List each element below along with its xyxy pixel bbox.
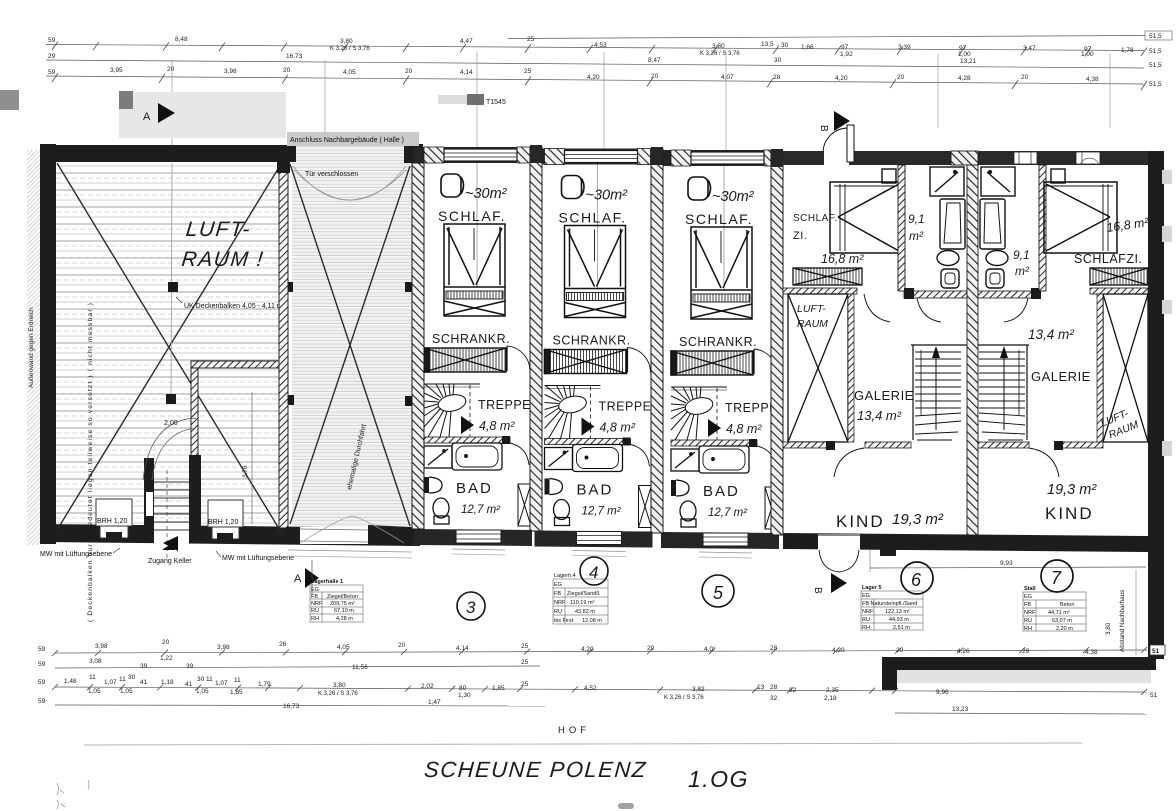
svg-text:59: 59 — [38, 698, 46, 705]
svg-text:2,02: 2,02 — [421, 683, 434, 690]
svg-text:RH: RH — [1024, 626, 1032, 632]
svg-text:4,52: 4,52 — [584, 685, 597, 692]
svg-text:4,20: 4,20 — [581, 646, 594, 653]
svg-text:9,1: 9,1 — [1013, 248, 1030, 262]
svg-text:1,47: 1,47 — [428, 699, 441, 706]
svg-text:44,93 m: 44,93 m — [889, 617, 909, 623]
svg-text:NRF: NRF — [311, 601, 323, 607]
svg-text:MW mit Lüftungsebene: MW mit Lüftungsebene — [222, 555, 294, 562]
svg-text:4,14: 4,14 — [460, 69, 473, 76]
svg-text:4,07: 4,07 — [721, 74, 734, 81]
svg-text:20: 20 — [896, 647, 904, 654]
svg-text:HOF: HOF — [558, 725, 590, 736]
svg-text:8,48: 8,48 — [175, 36, 188, 43]
svg-text:12,7 m²: 12,7 m² — [461, 504, 501, 516]
svg-text:20: 20 — [167, 66, 175, 73]
svg-text:LUFT-: LUFT- — [797, 303, 826, 315]
svg-text:GALERIE: GALERIE — [1031, 369, 1091, 384]
svg-text:BAD: BAD — [456, 480, 493, 497]
svg-text:Beton: Beton — [1060, 602, 1074, 608]
svg-text:13: 13 — [757, 684, 765, 691]
svg-text:3,98: 3,98 — [217, 644, 230, 651]
svg-text:SCHEUNE POLENZ: SCHEUNE POLENZ — [423, 757, 647, 782]
svg-text:1,07: 1,07 — [215, 680, 228, 687]
svg-text:RU: RU — [311, 608, 319, 614]
svg-text:Lagerhalle 1: Lagerhalle 1 — [311, 579, 343, 585]
svg-text:1,00: 1,00 — [958, 51, 971, 58]
svg-text:RU: RU — [1024, 618, 1032, 624]
svg-text:4,20: 4,20 — [587, 74, 600, 81]
svg-text:20: 20 — [405, 68, 413, 75]
svg-text:EG: EG — [311, 587, 319, 593]
svg-text:41: 41 — [185, 681, 193, 688]
svg-text:59: 59 — [38, 679, 46, 686]
svg-text:51,5: 51,5 — [1149, 81, 1162, 88]
svg-text:4,26: 4,26 — [957, 648, 970, 655]
svg-text:K 3,26 / S 3,76: K 3,26 / S 3,76 — [330, 46, 370, 52]
svg-text:26: 26 — [279, 641, 287, 648]
svg-text:B: B — [812, 587, 823, 594]
svg-text:4,20: 4,20 — [832, 647, 845, 654]
svg-text:4,38: 4,38 — [1085, 649, 1098, 656]
svg-text:7: 7 — [1051, 568, 1062, 588]
svg-text:EG: EG — [554, 582, 562, 588]
svg-text:1.OG: 1.OG — [688, 766, 749, 792]
svg-text:4: 4 — [589, 563, 598, 582]
svg-text:Abstand Nachbarhaus: Abstand Nachbarhaus — [1119, 590, 1126, 652]
svg-text:2,20 m: 2,20 m — [1056, 626, 1073, 632]
svg-text:25: 25 — [521, 681, 529, 688]
svg-text:20: 20 — [283, 67, 291, 74]
svg-text:20: 20 — [651, 73, 659, 80]
svg-text:11: 11 — [119, 676, 126, 683]
svg-text:39: 39 — [140, 663, 148, 670]
svg-text:29: 29 — [1022, 648, 1030, 655]
svg-text:3,80: 3,80 — [1105, 622, 1112, 635]
svg-text:3,95: 3,95 — [110, 67, 123, 74]
svg-text:209,75 m²: 209,75 m² — [330, 601, 355, 607]
svg-text:12,08 m: 12,08 m — [582, 618, 602, 624]
svg-text:RH: RH — [311, 616, 319, 622]
svg-text:19,3 m²: 19,3 m² — [892, 511, 944, 528]
svg-text:4,20: 4,20 — [835, 75, 848, 82]
svg-text:11,56: 11,56 — [352, 664, 368, 671]
svg-text:25: 25 — [521, 659, 529, 666]
svg-text:82: 82 — [789, 687, 797, 694]
svg-text:25: 25 — [527, 36, 535, 43]
svg-text:Stall: Stall — [1024, 586, 1036, 592]
svg-text:4,14: 4,14 — [456, 645, 469, 652]
svg-text:11: 11 — [89, 674, 96, 681]
svg-text:13,5: 13,5 — [761, 41, 774, 48]
svg-text:4,05: 4,05 — [343, 69, 356, 76]
svg-text:4,05: 4,05 — [337, 644, 350, 651]
svg-text:TREPPE: TREPPE — [478, 398, 531, 412]
svg-text:3,80: 3,80 — [340, 38, 353, 45]
svg-text:16,73: 16,73 — [283, 703, 300, 710]
svg-text:B: B — [818, 125, 829, 132]
svg-text:Ziegel/Beton: Ziegel/Beton — [327, 594, 358, 600]
svg-text:3,98: 3,98 — [224, 68, 237, 75]
svg-text:SCHLAF.: SCHLAF. — [793, 213, 838, 224]
svg-text:51,5: 51,5 — [1149, 48, 1162, 55]
svg-text:9,96: 9,96 — [936, 689, 949, 696]
svg-text:1,92: 1,92 — [840, 51, 853, 58]
svg-text:20: 20 — [647, 645, 655, 652]
svg-text:KIND: KIND — [1045, 504, 1094, 523]
svg-text:m²: m² — [909, 229, 924, 243]
svg-text:59: 59 — [38, 661, 46, 668]
svg-text:RAUM: RAUM — [797, 318, 828, 330]
svg-text:30: 30 — [781, 42, 789, 49]
svg-text:20: 20 — [398, 642, 406, 649]
svg-text:25: 25 — [521, 643, 529, 650]
svg-text:28: 28 — [770, 684, 778, 691]
svg-text:3,39: 3,39 — [898, 44, 911, 51]
svg-text:13,4 m²: 13,4 m² — [857, 408, 902, 423]
svg-text:1,22: 1,22 — [160, 655, 173, 662]
svg-text:1,18: 1,18 — [161, 679, 174, 686]
svg-text:59: 59 — [38, 646, 46, 653]
svg-text:RAUM !: RAUM ! — [181, 248, 266, 271]
svg-text:RH: RH — [862, 625, 870, 631]
svg-text:1,79: 1,79 — [258, 681, 271, 688]
svg-text:28: 28 — [773, 74, 781, 81]
svg-text:4,38: 4,38 — [1086, 76, 1099, 83]
svg-text:122,13 m²: 122,13 m² — [885, 609, 910, 615]
svg-text:1,85: 1,85 — [492, 685, 505, 692]
svg-text:67,10 m: 67,10 m — [334, 608, 354, 614]
svg-text:K 3,26 / S 3,76: K 3,26 / S 3,76 — [664, 695, 704, 701]
svg-text:FB: FB — [1024, 602, 1031, 608]
svg-text:~30m²: ~30m² — [465, 186, 508, 202]
svg-text:GALERIE: GALERIE — [854, 388, 914, 403]
svg-text:25: 25 — [524, 68, 532, 75]
svg-text:43,82 m: 43,82 m — [575, 609, 595, 615]
svg-text:FB: FB — [311, 594, 318, 600]
svg-text:( Deckenbalken nur angedeutet: ( Deckenbalken nur angedeutet liegen tei… — [87, 302, 94, 622]
svg-text:3: 3 — [466, 598, 476, 617]
svg-text:Tür verschlossen: Tür verschlossen — [305, 171, 358, 178]
svg-text:A: A — [143, 111, 151, 123]
svg-text:59: 59 — [48, 69, 56, 76]
svg-text:ZI.: ZI. — [793, 230, 807, 242]
svg-text:NRF: NRF — [862, 609, 874, 615]
svg-text:SCHLAF.: SCHLAF. — [438, 208, 506, 224]
svg-text:6: 6 — [911, 570, 922, 590]
svg-text:1,66: 1,66 — [801, 44, 814, 51]
svg-text:FB: FB — [554, 591, 561, 597]
svg-text:m²: m² — [1015, 264, 1030, 278]
svg-text:1,48: 1,48 — [64, 678, 77, 685]
svg-text:K 3,26 / S 3,76: K 3,26 / S 3,76 — [318, 691, 358, 697]
svg-text:2,18: 2,18 — [824, 695, 837, 702]
svg-text:NRF: NRF — [1024, 610, 1036, 616]
svg-text:BRH 1,20: BRH 1,20 — [97, 518, 127, 525]
svg-text:A: A — [294, 573, 302, 585]
svg-text:1,00: 1,00 — [1081, 51, 1094, 58]
svg-text:4,8 m²: 4,8 m² — [479, 419, 515, 433]
svg-text:Anschluss Nachbargebäude ( Hal: Anschluss Nachbargebäude ( Halle ) — [290, 137, 404, 144]
svg-text:RU: RU — [554, 609, 562, 615]
svg-text:30: 30 — [197, 676, 205, 683]
svg-text:T1545: T1545 — [486, 99, 506, 106]
svg-text:4,28 m: 4,28 m — [336, 616, 353, 622]
svg-text:16,8 m²: 16,8 m² — [1105, 215, 1150, 235]
svg-text:20: 20 — [897, 74, 905, 81]
svg-text:3,76: 3,76 — [242, 465, 249, 478]
svg-text:19,3 m²: 19,3 m² — [1047, 482, 1097, 498]
svg-text:9,93: 9,93 — [1000, 560, 1013, 567]
svg-text:29: 29 — [48, 53, 56, 60]
svg-text:K 3,26 / S 3,76: K 3,26 / S 3,76 — [700, 51, 740, 57]
svg-text:11: 11 — [234, 677, 241, 684]
svg-text:110,19 m²: 110,19 m² — [570, 600, 595, 606]
svg-text:1,05: 1,05 — [88, 688, 101, 695]
svg-text:3,47: 3,47 — [1023, 45, 1036, 52]
svg-text:4,47: 4,47 — [460, 38, 473, 45]
svg-text:3,98: 3,98 — [95, 643, 108, 650]
svg-text:63,07 m: 63,07 m — [1052, 618, 1072, 624]
svg-text:16,8 m²: 16,8 m² — [821, 252, 864, 266]
svg-text:SCHRANKR.: SCHRANKR. — [432, 332, 510, 346]
svg-text:Ziegel/Sandß: Ziegel/Sandß — [567, 591, 600, 597]
svg-text:51: 51 — [1150, 692, 1158, 699]
svg-text:59: 59 — [48, 37, 56, 44]
svg-text:3,82: 3,82 — [692, 686, 705, 693]
svg-text:30: 30 — [128, 674, 136, 681]
svg-text:1,30: 1,30 — [458, 692, 471, 699]
svg-text:1,85: 1,85 — [230, 689, 243, 696]
svg-text:Lager 5: Lager 5 — [862, 585, 882, 591]
svg-text:16,73: 16,73 — [286, 53, 303, 60]
svg-text:11: 11 — [206, 676, 213, 683]
svg-text:EG: EG — [862, 593, 870, 599]
svg-text:Zugang Keller: Zugang Keller — [148, 558, 192, 565]
svg-text:Lagerh.4: Lagerh.4 — [554, 573, 576, 579]
svg-text:NRF: NRF — [554, 600, 566, 606]
svg-text:39: 39 — [186, 663, 194, 670]
svg-text:3,80: 3,80 — [712, 43, 725, 50]
svg-text:1,07: 1,07 — [104, 679, 117, 686]
svg-text:1,78: 1,78 — [1121, 47, 1134, 54]
svg-text:bis First: bis First — [554, 618, 574, 624]
svg-text:20: 20 — [1021, 74, 1029, 81]
svg-text:51,5: 51,5 — [1149, 33, 1162, 40]
svg-text:2,00: 2,00 — [164, 420, 178, 427]
svg-text:44,71 m²: 44,71 m² — [1048, 610, 1070, 616]
svg-text:RU: RU — [862, 617, 870, 623]
svg-text:20: 20 — [162, 639, 170, 646]
svg-text:9,1: 9,1 — [908, 212, 925, 226]
svg-text:51,5: 51,5 — [1149, 62, 1162, 69]
svg-text:51: 51 — [1152, 648, 1160, 655]
svg-text:5: 5 — [713, 583, 724, 603]
svg-text:97: 97 — [841, 44, 849, 51]
svg-text:1,05: 1,05 — [196, 688, 209, 695]
svg-text:28: 28 — [770, 645, 778, 652]
svg-text:13,21: 13,21 — [960, 58, 977, 65]
svg-text:30: 30 — [774, 57, 782, 64]
svg-text:13,23: 13,23 — [952, 706, 969, 713]
svg-text:32: 32 — [770, 695, 778, 702]
svg-text:3,80: 3,80 — [333, 682, 346, 689]
svg-text:UK Deckenbalken 4,05 - 4,11 m: UK Deckenbalken 4,05 - 4,11 m — [184, 303, 283, 310]
svg-text:13,4 m²: 13,4 m² — [1028, 327, 1074, 342]
svg-text:4,28: 4,28 — [958, 75, 971, 82]
svg-text:1,05: 1,05 — [120, 688, 133, 695]
svg-text:2,35: 2,35 — [826, 687, 839, 694]
svg-text:EG: EG — [1024, 594, 1032, 600]
svg-text:41: 41 — [140, 679, 148, 686]
svg-text:LUFT-: LUFT- — [185, 218, 252, 241]
svg-text:SCHLAFZI.: SCHLAFZI. — [1074, 252, 1142, 266]
svg-text:FB Natursteinpfl./Sand: FB Natursteinpfl./Sand — [862, 601, 917, 607]
svg-text:8,47: 8,47 — [648, 57, 661, 64]
svg-text:2,51 m: 2,51 m — [893, 625, 910, 631]
svg-text:BRH 1,20: BRH 1,20 — [208, 519, 238, 526]
svg-text:4,53: 4,53 — [594, 42, 607, 49]
svg-text:KIND: KIND — [836, 512, 885, 531]
svg-text:MW mit Lüftungsebene: MW mit Lüftungsebene — [40, 551, 112, 558]
svg-text:3,08: 3,08 — [89, 658, 102, 665]
svg-text:80: 80 — [459, 685, 467, 692]
svg-text:Außenwand gegen Erdreich: Außenwand gegen Erdreich — [28, 307, 35, 388]
svg-text:4,0°: 4,0° — [704, 645, 716, 653]
